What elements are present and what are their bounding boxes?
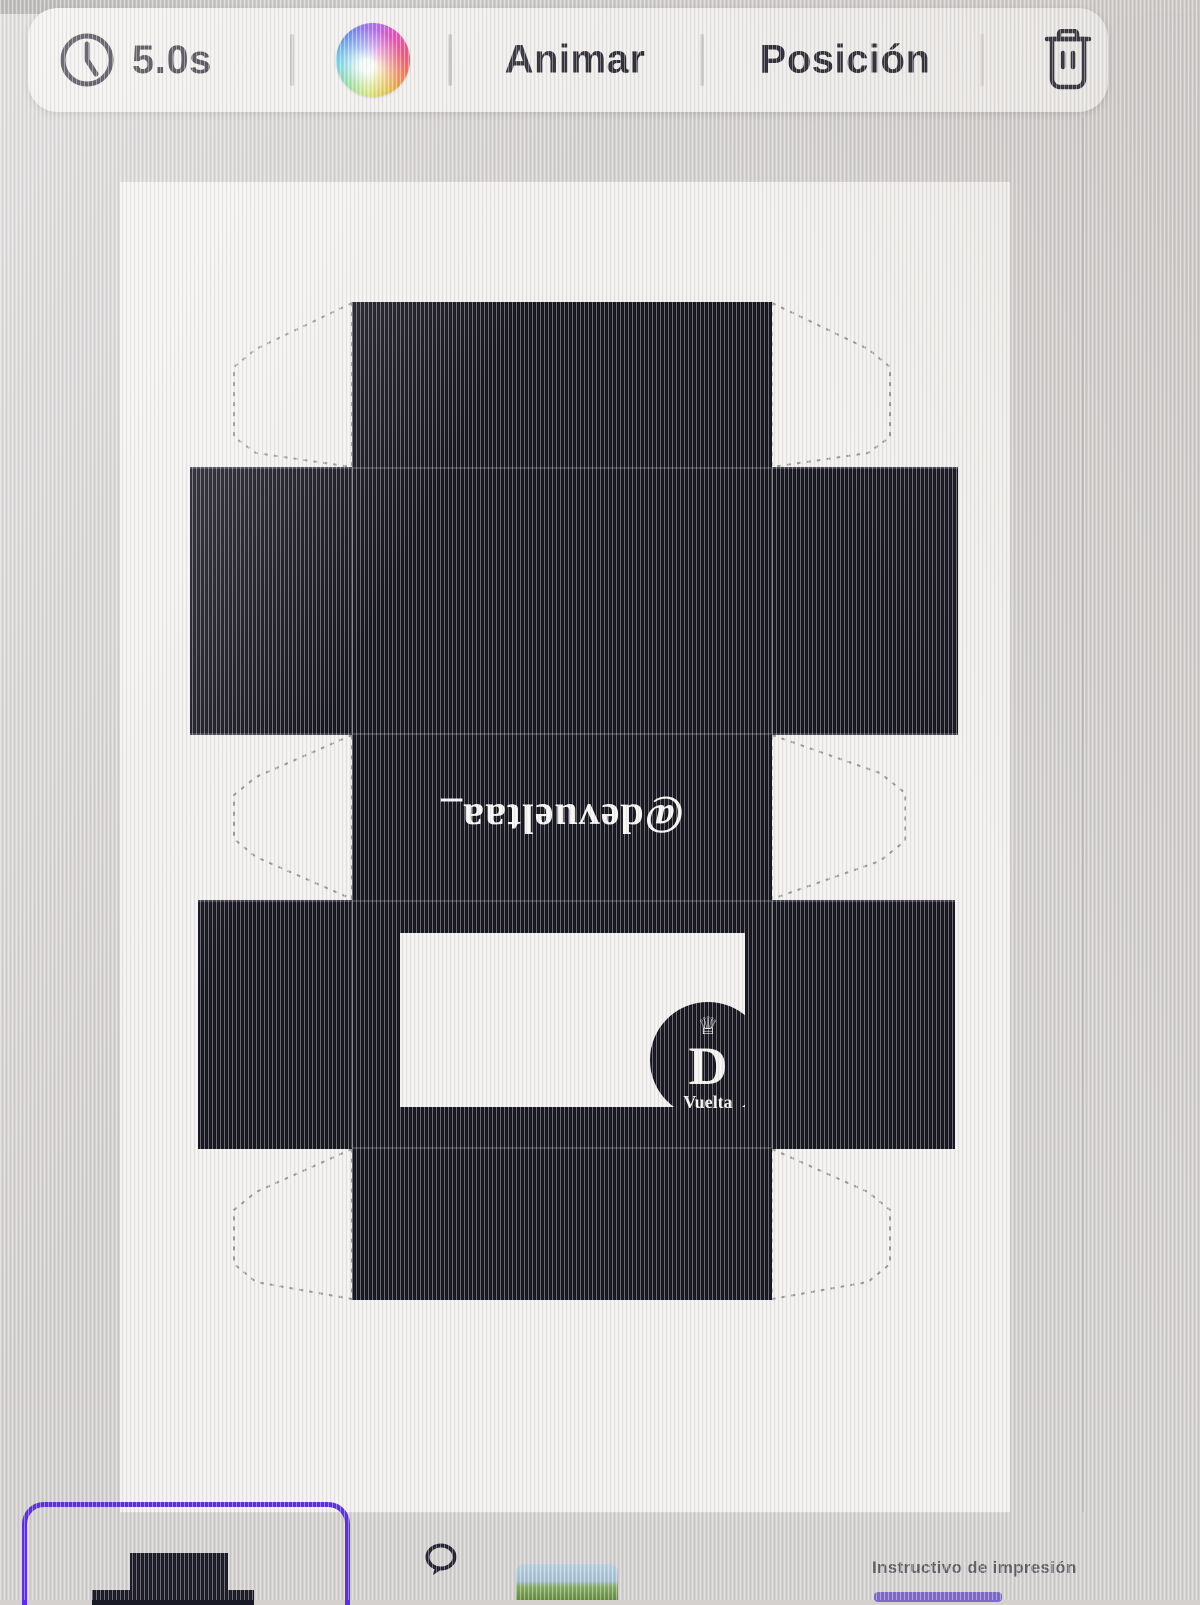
trash-icon [1042,29,1094,91]
back-panel[interactable] [190,467,958,735]
clock-icon [58,31,116,89]
lid-panel[interactable] [352,302,772,468]
design-canvas: @devueltaa_ ♕ D Vuelta [120,182,1010,1513]
position-button[interactable]: Posición [730,38,960,83]
canvas-edge [1082,118,1084,1512]
toolbar-separator [980,34,984,86]
logo-initial: D [689,1036,728,1096]
handle-text[interactable]: @devueltaa_ [440,794,684,840]
toolbar-separator [448,34,452,86]
context-toolbar: 5.0s Animar Posición [28,8,1108,112]
logo-name: Vuelta [683,1092,732,1112]
color-wheel-icon[interactable] [336,23,410,97]
print-instructions-link[interactable] [874,1592,1002,1602]
duration-button[interactable]: 5.0s [58,31,212,89]
tuck-flap[interactable] [234,735,352,899]
page-thumbnail-2[interactable] [516,1564,618,1600]
print-instructions-caption: Instructivo de impresión [872,1558,1077,1578]
animate-button[interactable]: Animar [480,38,670,83]
thumbnail-dieline-body [92,1590,254,1605]
thumbnail-dieline-lid [130,1553,228,1590]
tuck-flap[interactable] [234,303,352,467]
trash-button[interactable] [1036,25,1100,95]
tuck-flap[interactable] [234,1149,352,1299]
duration-label: 5.0s [132,38,212,83]
brand-logo[interactable]: ♕ D Vuelta [650,1002,766,1118]
comment-bubble-icon[interactable] [422,1542,462,1585]
tuck-flap[interactable] [772,1149,890,1299]
tuck-flap[interactable] [772,303,890,467]
bottom-flap-panel[interactable] [352,1148,772,1300]
box-dieline[interactable]: @devueltaa_ ♕ D Vuelta [120,182,1010,1512]
page-thumbnail-selected[interactable] [22,1502,350,1605]
toolbar-separator [290,34,294,86]
glue-flap[interactable] [772,735,905,899]
toolbar-separator [700,34,704,86]
